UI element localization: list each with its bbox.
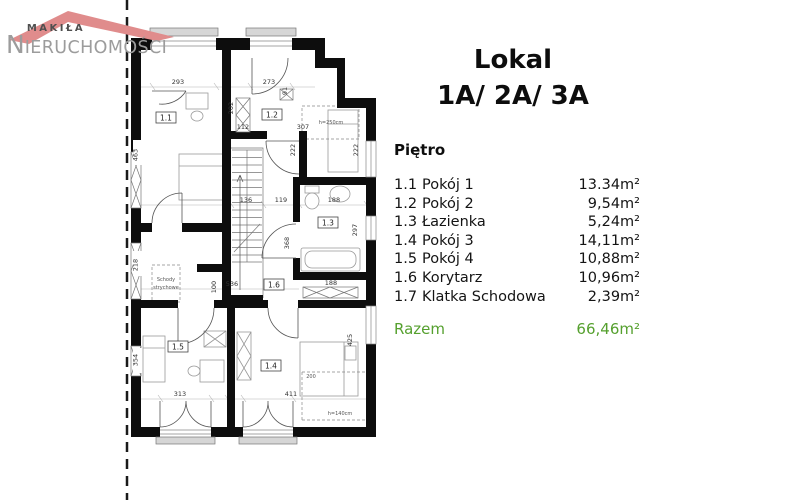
room-row: 1.5 Pokój 4 10,88m²	[394, 250, 640, 269]
room-row: 1.4 Pokój 3 14,11m²	[394, 232, 640, 251]
room-label: 1.6	[268, 281, 280, 290]
bed	[143, 336, 165, 382]
dim-label: 425	[346, 334, 354, 346]
window-sill	[156, 437, 215, 444]
bed	[179, 154, 223, 200]
dim-label: 188	[325, 279, 337, 287]
room-area: 13.34m²	[579, 176, 640, 195]
dim-label: 463	[132, 149, 140, 161]
room-area: 9,54m²	[588, 195, 640, 214]
staircase	[231, 148, 263, 298]
attic-stairs-outline	[152, 265, 180, 302]
dim-label: 119	[275, 196, 287, 204]
room-area: 10,96m²	[579, 269, 640, 288]
room-name: Klatka Schodowa	[422, 288, 546, 307]
attic-stairs-note: strychowe	[153, 285, 179, 291]
niche-height-note: h=250cm	[319, 120, 344, 126]
room-label: 1.2	[266, 111, 278, 120]
window-casement-arc	[160, 401, 211, 427]
room-name: Łazienka	[422, 213, 486, 232]
room-name: Pokój 4	[422, 250, 474, 269]
room-number: 1.2	[394, 195, 422, 214]
wardrobe	[237, 332, 251, 380]
chair	[191, 111, 203, 121]
toilet	[305, 186, 319, 209]
room-row: 1.6 Korytarz 10,96m²	[394, 269, 640, 288]
window-sill	[239, 437, 297, 444]
unit-title-line2: 1A/ 2A/ 3A	[390, 78, 636, 114]
room-label: 1.5	[172, 343, 184, 352]
dim-label: 91	[281, 87, 289, 95]
dim-label: 222	[352, 144, 360, 156]
room-area: 14,11m²	[579, 232, 640, 251]
attic-stairs-note: Schody	[157, 277, 175, 283]
logo-main-initial: N	[6, 30, 25, 59]
bathtub	[301, 248, 360, 271]
wardrobe	[204, 331, 226, 347]
dim-label: 222	[289, 144, 297, 156]
room-number: 1.7	[394, 288, 422, 307]
room-row: 1.2 Pokój 2 9,54m²	[394, 195, 640, 214]
room-name: Pokój 2	[422, 195, 474, 214]
room-name: Pokój 1	[422, 176, 474, 195]
room-area: 2,39m²	[588, 288, 640, 307]
unit-title: Lokal 1A/ 2A/ 3A	[390, 42, 636, 114]
room-name: Korytarz	[422, 269, 482, 288]
dim-label: 273	[263, 78, 275, 86]
bed-length-note: 200	[306, 374, 316, 380]
agency-logo: MAKIŁA NIERUCHOMOŚCI	[4, 4, 179, 66]
desk	[186, 93, 208, 109]
dim-label: 536	[226, 280, 238, 288]
floor-label: Piętro	[394, 141, 445, 159]
dim-label: 112	[237, 123, 249, 131]
room-number: 1.6	[394, 269, 422, 288]
door-arc	[152, 193, 182, 223]
total-area: 66,46m²	[576, 320, 640, 339]
window-sill	[246, 28, 296, 36]
logo-top-text: MAKIŁA	[27, 23, 85, 34]
dim-label: 202	[227, 102, 235, 114]
floorplan-page: 1.1 1.2 1.3 1.6 1.5 1.4 293 273 91 112 2…	[0, 0, 800, 500]
total-label: Razem	[394, 320, 445, 339]
door-arc	[268, 308, 298, 338]
built-in-closet	[303, 287, 358, 298]
dim-label: 218	[132, 259, 140, 271]
window-casement-arc	[243, 401, 293, 427]
room-number: 1.4	[394, 232, 422, 251]
room-area: 10,88m²	[579, 250, 640, 269]
dim-label: 136	[240, 196, 252, 204]
dim-label: 313	[174, 390, 186, 398]
total-row: Razem 66,46m²	[394, 320, 640, 339]
bed	[300, 342, 358, 396]
room-number: 1.5	[394, 250, 422, 269]
room-number: 1.3	[394, 213, 422, 232]
room-number: 1.1	[394, 176, 422, 195]
window-casement-arc	[152, 91, 186, 104]
room-name: Pokój 3	[422, 232, 474, 251]
dim-label: 188	[328, 196, 340, 204]
dim-label: 100	[210, 281, 218, 293]
unit-title-line1: Lokal	[390, 42, 636, 78]
dim-label: 411	[285, 390, 297, 398]
dim-label: 297	[351, 224, 359, 236]
desk	[200, 360, 224, 382]
dim-label: 293	[172, 78, 184, 86]
room-row: 1.3 Łazienka 5,24m²	[394, 213, 640, 232]
room-label: 1.4	[265, 362, 277, 371]
room-label: 1.3	[322, 219, 334, 228]
room-area: 5,24m²	[588, 213, 640, 232]
dim-label: 307	[297, 123, 309, 131]
room-label: 1.1	[160, 114, 172, 123]
room-list: 1.1 Pokój 1 13.34m² 1.2 Pokój 2 9,54m² 1…	[394, 176, 640, 306]
room-row: 1.7 Klatka Schodowa 2,39m²	[394, 288, 640, 307]
roof-height-note: h=140cm	[328, 411, 353, 417]
dim-label: 354	[132, 354, 140, 366]
dim-label: 368	[283, 237, 291, 249]
room-row: 1.1 Pokój 1 13.34m²	[394, 176, 640, 195]
chair	[188, 366, 200, 376]
logo-main-rest: IERUCHOMOŚCI	[25, 36, 168, 58]
